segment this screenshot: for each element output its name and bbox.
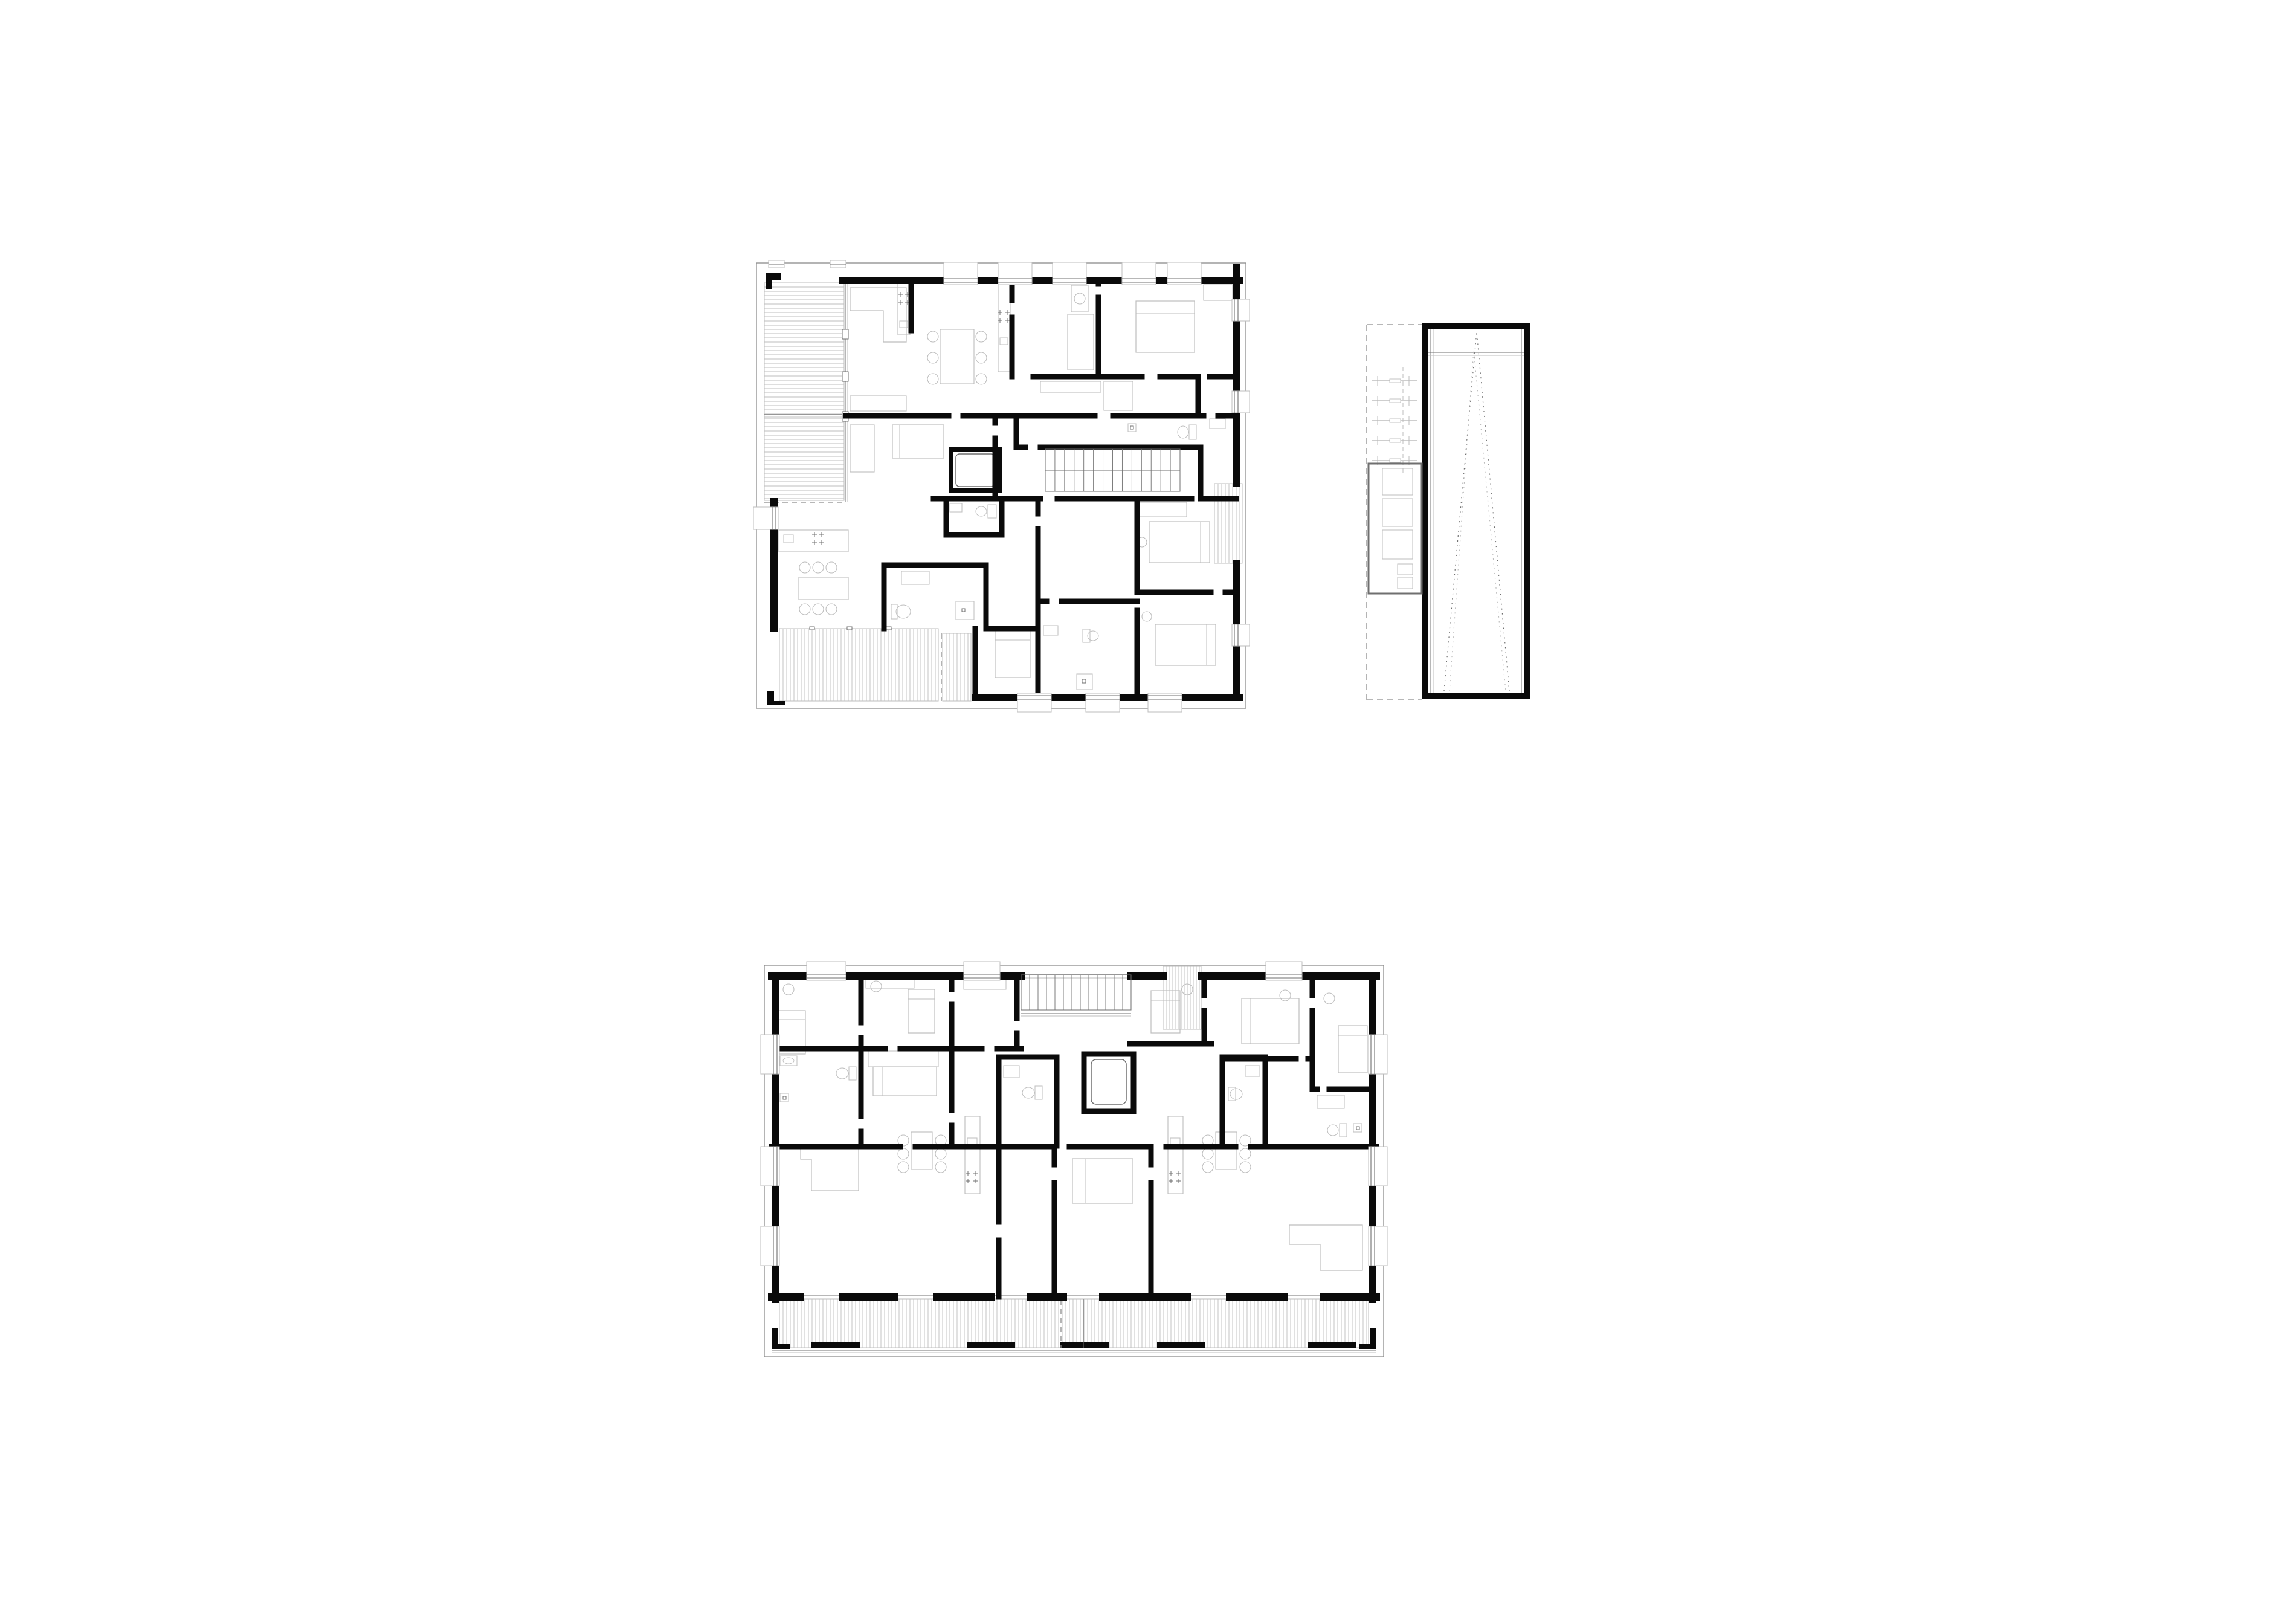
wall-segment [1428, 693, 1524, 699]
fixture-ellipse [976, 506, 987, 516]
window-frame [761, 1147, 779, 1186]
fixture-ellipse [1022, 1087, 1034, 1098]
furniture-outline [866, 980, 914, 988]
window-frame [1266, 962, 1302, 980]
stove-burners [812, 532, 824, 545]
chair-circle [935, 1162, 946, 1173]
hatch-area [779, 1299, 1369, 1348]
chair-circle [1202, 1148, 1213, 1159]
wall-segment [811, 1342, 860, 1348]
window-frame [807, 962, 846, 980]
window [1053, 262, 1086, 285]
chair-circle [1324, 993, 1335, 1004]
floor-plan-canvas [0, 0, 2296, 1624]
window-frame [1167, 262, 1201, 285]
wall-segment [772, 1344, 790, 1349]
chair-circle [871, 981, 882, 992]
furniture-outline [1390, 419, 1401, 422]
hatch-boundary [943, 633, 971, 701]
furniture-outline [1338, 1026, 1367, 1073]
furniture-outline [892, 425, 944, 458]
window-frame [1369, 1226, 1387, 1266]
furniture-outline [1398, 577, 1413, 589]
furniture-outline [1390, 439, 1401, 442]
furniture-outline [1398, 564, 1413, 575]
hatch-area [1214, 484, 1242, 563]
window [761, 1226, 779, 1266]
furniture-outline [1151, 991, 1180, 1033]
furniture-outline [998, 280, 1010, 372]
furniture-outline [1356, 1127, 1359, 1130]
fixture-ellipse [1327, 1125, 1338, 1136]
furniture-outline [842, 372, 848, 381]
wall-segment [1524, 323, 1530, 699]
chair-circle [813, 562, 824, 573]
wall-segment [767, 701, 785, 705]
window-frame [944, 262, 978, 285]
window [1122, 262, 1156, 285]
furniture-outline [1204, 285, 1233, 300]
chair-circle [813, 604, 824, 615]
window [1232, 624, 1250, 646]
furniture-outline [1369, 464, 1422, 594]
hatch-area [1163, 966, 1201, 1029]
furniture-outline [873, 1067, 937, 1096]
chair-circle [927, 374, 938, 384]
furniture-outline [964, 980, 1006, 989]
hatch-boundary [779, 1299, 1369, 1348]
furniture-outline [1082, 679, 1086, 683]
window-frame [1086, 693, 1120, 712]
window-frame [1369, 1035, 1387, 1074]
furniture-outline [780, 1056, 797, 1066]
window [998, 262, 1032, 285]
stove-burners [898, 292, 910, 305]
window [761, 1147, 779, 1186]
furniture-outline [1228, 1087, 1236, 1101]
furniture-outline [1068, 314, 1094, 370]
fixture-ellipse [1088, 631, 1098, 641]
furniture-outline [901, 571, 929, 584]
window-frame [1369, 1147, 1387, 1186]
wall-segment [1428, 323, 1524, 329]
stove-burners [966, 1171, 978, 1183]
furniture-outline [1072, 1159, 1133, 1203]
window-frame [761, 1226, 779, 1266]
furniture-outline [779, 530, 848, 552]
furniture-outline [1040, 381, 1101, 392]
furniture-outline [962, 609, 965, 612]
furniture-outline [1000, 338, 1008, 345]
window [807, 962, 846, 980]
chair-circle [927, 331, 938, 342]
window-frame [1148, 693, 1182, 712]
ground-floor-plan [761, 962, 1387, 1357]
chair-circle [826, 604, 837, 615]
window-frame [1122, 262, 1156, 285]
furniture-outline [1077, 674, 1092, 690]
hatch-boundary [1214, 484, 1242, 563]
furniture-outline [1340, 1124, 1347, 1137]
furniture-outline [1104, 381, 1133, 410]
furniture-outline [1210, 419, 1225, 429]
fixture-ellipse [836, 1068, 848, 1079]
furniture-outline [908, 989, 935, 1033]
chair-circle [1202, 1162, 1213, 1173]
window [1369, 1226, 1387, 1266]
window [1266, 962, 1302, 980]
chair-circle [799, 604, 810, 615]
window [1148, 693, 1182, 712]
furniture-outline [799, 577, 848, 600]
furniture-outline [940, 329, 974, 384]
window [1017, 693, 1051, 712]
stove-burners [1169, 1171, 1181, 1183]
window [944, 262, 978, 285]
hatch-area [943, 633, 971, 701]
window [1232, 299, 1250, 321]
chair-circle [799, 562, 810, 573]
fixture-ellipse [1178, 426, 1188, 438]
furniture-outline [950, 503, 962, 512]
chair-circle [898, 1162, 909, 1173]
furniture-outline [1189, 425, 1196, 439]
window [1086, 693, 1120, 712]
window [964, 962, 1000, 980]
outline-path [1289, 1225, 1362, 1270]
furniture-outline [784, 535, 793, 543]
window [1369, 1147, 1387, 1186]
furniture-outline [1245, 1066, 1260, 1076]
chair-circle [1142, 612, 1152, 621]
chair-circle [783, 984, 794, 995]
furniture-outline [850, 425, 874, 472]
chair-circle [1280, 990, 1291, 1001]
chair-circle [976, 331, 987, 342]
window-frame [964, 962, 1000, 980]
hatch-boundary [764, 283, 844, 500]
chair-circle [935, 1148, 946, 1159]
window [753, 507, 778, 529]
furniture-outline [1353, 1124, 1362, 1132]
furniture-outline [965, 1116, 980, 1194]
chair-circle [826, 562, 837, 573]
window [761, 1035, 779, 1074]
furniture-outline [1382, 530, 1413, 559]
furniture-outline [1091, 1059, 1126, 1104]
furniture-outline [1216, 1132, 1237, 1169]
furniture-outline [1140, 502, 1187, 517]
furniture-outline [1035, 1086, 1042, 1099]
upper-floor-plan [753, 260, 1250, 712]
furniture-outline [995, 630, 1030, 678]
chair-circle [927, 352, 938, 363]
chair-circle [1240, 1148, 1251, 1159]
chair-circle [1240, 1162, 1251, 1173]
furniture-outline [810, 627, 814, 630]
furniture-outline [1382, 499, 1413, 526]
wall-segment [967, 1342, 1015, 1348]
furniture-outline [849, 1067, 856, 1080]
furniture-outline [847, 627, 852, 630]
furniture-outline [1130, 426, 1133, 429]
furniture-outline [783, 1096, 786, 1099]
furniture-outline [1390, 399, 1401, 403]
furniture-outline [850, 396, 906, 411]
chair-circle [1074, 293, 1085, 304]
hatch-area [779, 629, 938, 701]
chair-circle [976, 352, 987, 363]
staircase [1021, 975, 1131, 1010]
wall-segment [1060, 1342, 1109, 1348]
hatch-boundary [779, 629, 938, 701]
outline-path [1450, 350, 1506, 691]
stove-burners [998, 310, 1010, 323]
furniture-outline [780, 1093, 788, 1102]
chair-circle [976, 374, 987, 384]
furniture-outline [1128, 424, 1136, 432]
hatch-area [764, 283, 844, 500]
hatch-boundary [1163, 966, 1201, 1029]
chair-circle [898, 1148, 909, 1159]
window-frame [761, 1035, 779, 1074]
fixture-ellipse [783, 1058, 794, 1064]
furniture-outline [886, 627, 891, 630]
furniture-outline [988, 505, 996, 518]
furniture-outline [1043, 626, 1058, 635]
wall-segment [1157, 1342, 1205, 1348]
window [1369, 1035, 1387, 1074]
furniture-outline [1071, 285, 1088, 312]
furniture-outline [1242, 998, 1299, 1044]
staircase [1045, 449, 1180, 491]
fixture-ellipse [896, 605, 911, 618]
furniture-outline [868, 1051, 938, 1067]
furniture-outline [1390, 379, 1401, 383]
furniture-outline [1390, 459, 1401, 462]
window-frame [753, 507, 778, 529]
window-frame [1053, 262, 1086, 285]
window-frame [1017, 693, 1051, 712]
furniture-outline [1136, 301, 1195, 352]
furniture-outline [1168, 1116, 1183, 1194]
window-frame [998, 262, 1032, 285]
wall-segment [1359, 1344, 1376, 1349]
window [1232, 391, 1250, 413]
furniture-outline [1004, 1066, 1019, 1078]
furniture-outline [1317, 1095, 1344, 1108]
wall-segment [1308, 1342, 1356, 1348]
fixture-ellipse [1230, 1089, 1242, 1099]
furniture-outline [842, 329, 848, 339]
garage-ramp-plan [1367, 323, 1530, 700]
furniture-outline [956, 454, 995, 487]
drawing-sheet [0, 0, 2296, 1624]
furniture-outline [1083, 629, 1090, 642]
wall-segment [766, 273, 772, 289]
outline-path [801, 1148, 859, 1191]
furniture-outline [1382, 468, 1413, 495]
window [1167, 262, 1201, 285]
furniture-outline [911, 1132, 932, 1169]
